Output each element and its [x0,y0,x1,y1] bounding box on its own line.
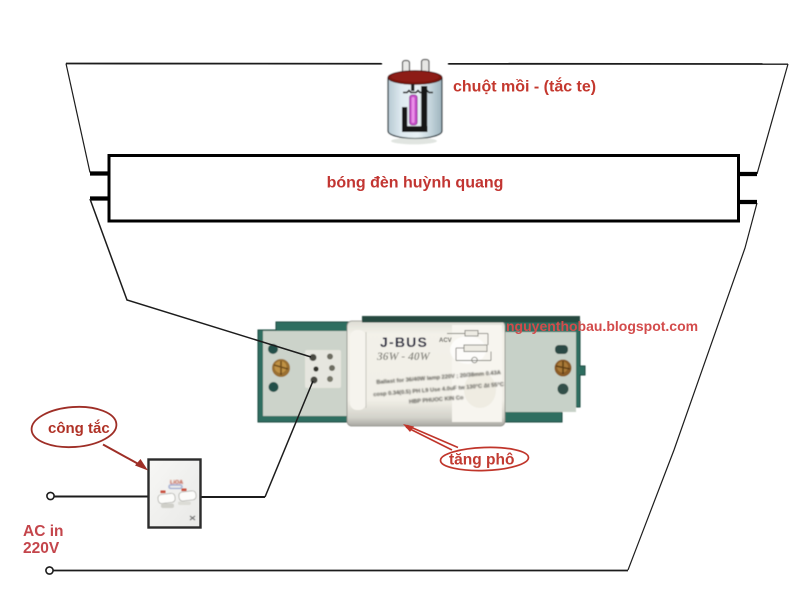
svg-text:bóng đèn huỳnh quang: bóng đèn huỳnh quang [327,175,504,192]
svg-text:220V: 220V [23,540,60,557]
svg-text:AC in: AC in [23,523,63,540]
svg-text:36W - 40W: 36W - 40W [376,351,431,363]
svg-text:nguyenthobau.blogspot.com: nguyenthobau.blogspot.com [506,318,698,334]
svg-text:tăng phô: tăng phô [449,452,514,469]
svg-text:chuột mồi - (tắc te): chuột mồi - (tắc te) [453,77,596,96]
svg-text:J-BUS: J-BUS [380,334,428,350]
svg-text:công tắc: công tắc [48,419,110,437]
svg-text:ACV: ACV [439,338,452,344]
